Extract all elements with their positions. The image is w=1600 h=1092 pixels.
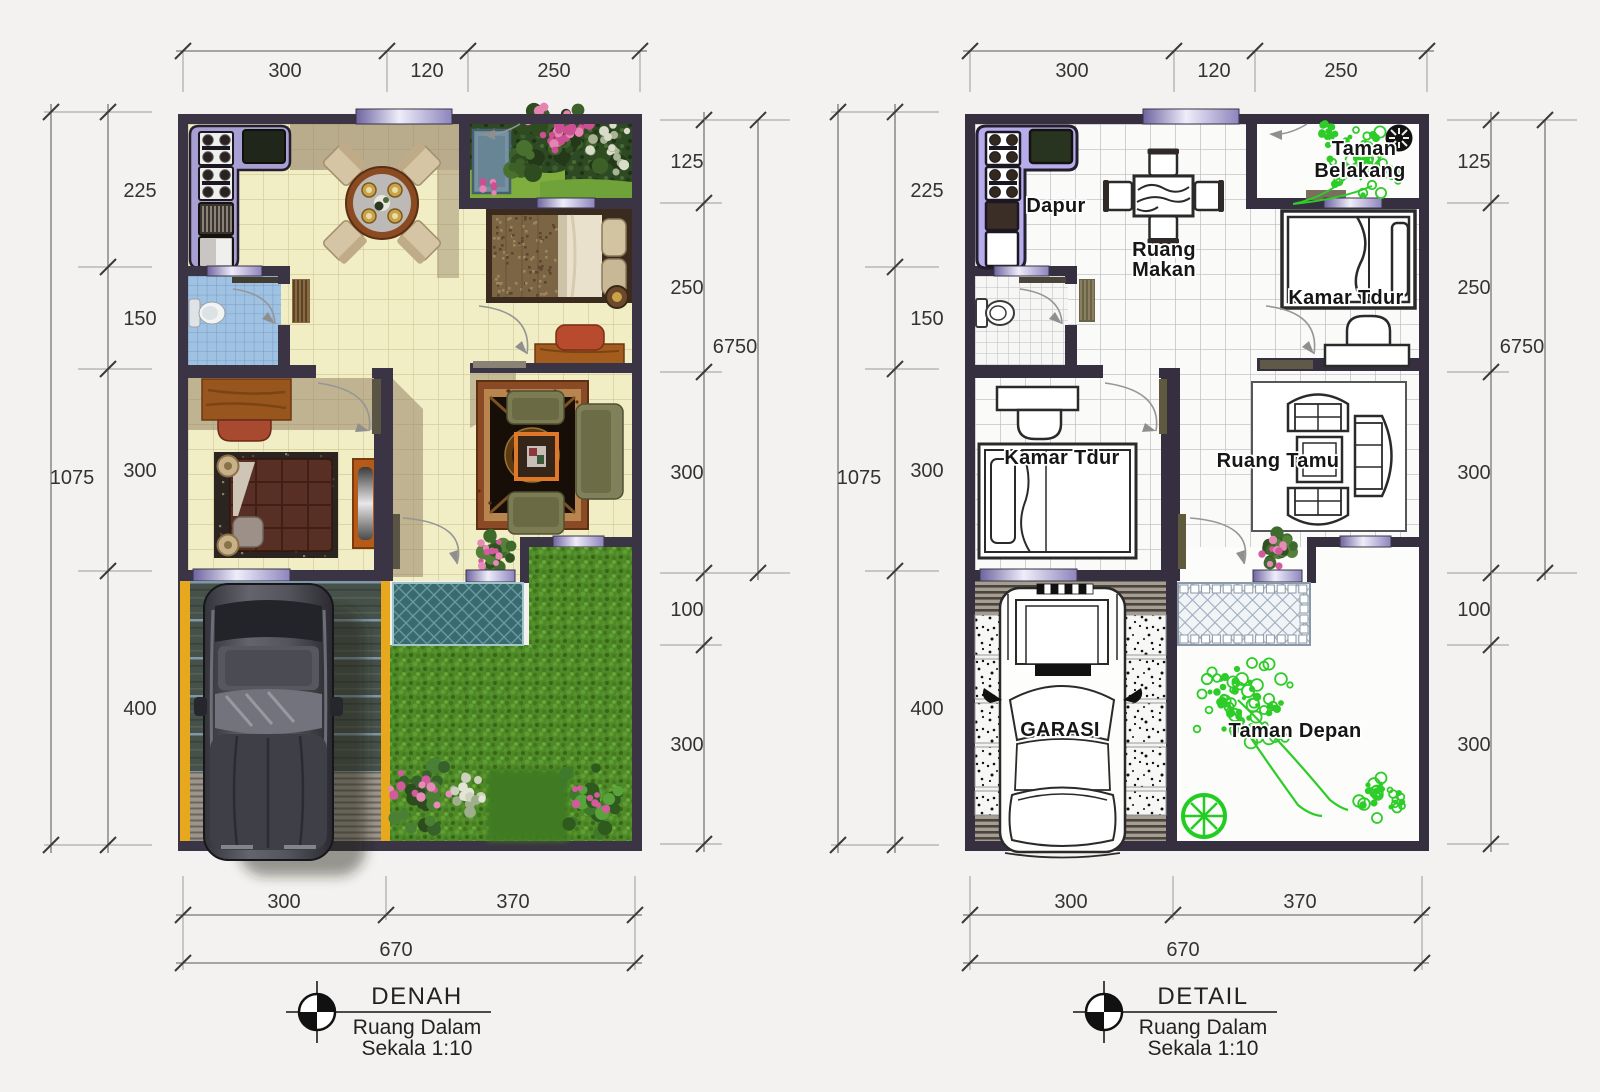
svg-text:370: 370 [1283, 891, 1316, 913]
svg-text:250: 250 [670, 277, 703, 299]
svg-text:250: 250 [537, 60, 570, 82]
svg-text:Ruang: Ruang [1132, 239, 1196, 261]
svg-text:Ruang Tamu: Ruang Tamu [1217, 450, 1340, 472]
svg-text:Ruang Dalam: Ruang Dalam [1139, 1016, 1267, 1039]
svg-text:Taman: Taman [1332, 138, 1396, 160]
svg-text:300: 300 [1054, 891, 1087, 913]
svg-text:300: 300 [910, 460, 943, 482]
svg-text:DETAIL: DETAIL [1157, 983, 1248, 1010]
svg-text:150: 150 [123, 308, 156, 330]
svg-text:225: 225 [123, 180, 156, 202]
svg-text:120: 120 [410, 60, 443, 82]
svg-text:400: 400 [910, 698, 943, 720]
svg-text:6750: 6750 [1500, 336, 1545, 358]
svg-text:DENAH: DENAH [371, 983, 463, 1010]
svg-text:GARASI: GARASI [1020, 719, 1100, 741]
svg-text:Ruang Dalam: Ruang Dalam [353, 1016, 481, 1039]
svg-text:300: 300 [1457, 734, 1490, 756]
svg-text:670: 670 [379, 939, 412, 961]
svg-text:6750: 6750 [713, 336, 758, 358]
svg-text:1075: 1075 [837, 467, 882, 489]
svg-text:250: 250 [1457, 277, 1490, 299]
svg-text:670: 670 [1166, 939, 1199, 961]
svg-text:Taman Depan: Taman Depan [1229, 720, 1362, 742]
svg-text:125: 125 [1457, 151, 1490, 173]
svg-text:300: 300 [123, 460, 156, 482]
svg-text:1075: 1075 [50, 467, 95, 489]
svg-text:100: 100 [1457, 599, 1490, 621]
svg-text:300: 300 [268, 60, 301, 82]
svg-text:300: 300 [1055, 60, 1088, 82]
svg-text:Kamar Tdur: Kamar Tdur [1288, 287, 1403, 309]
svg-text:100: 100 [670, 599, 703, 621]
svg-text:Kamar Tdur: Kamar Tdur [1004, 447, 1119, 469]
svg-text:250: 250 [1324, 60, 1357, 82]
svg-text:Dapur: Dapur [1026, 195, 1085, 217]
svg-text:150: 150 [910, 308, 943, 330]
svg-text:370: 370 [496, 891, 529, 913]
svg-text:Sekala 1:10: Sekala 1:10 [362, 1037, 473, 1060]
svg-text:225: 225 [910, 180, 943, 202]
svg-text:Belakang: Belakang [1314, 160, 1405, 182]
svg-text:Makan: Makan [1132, 259, 1196, 281]
svg-text:Sekala 1:10: Sekala 1:10 [1148, 1037, 1259, 1060]
svg-text:120: 120 [1197, 60, 1230, 82]
svg-text:300: 300 [267, 891, 300, 913]
svg-text:125: 125 [670, 151, 703, 173]
svg-text:300: 300 [670, 462, 703, 484]
svg-text:400: 400 [123, 698, 156, 720]
svg-text:300: 300 [1457, 462, 1490, 484]
svg-text:300: 300 [670, 734, 703, 756]
